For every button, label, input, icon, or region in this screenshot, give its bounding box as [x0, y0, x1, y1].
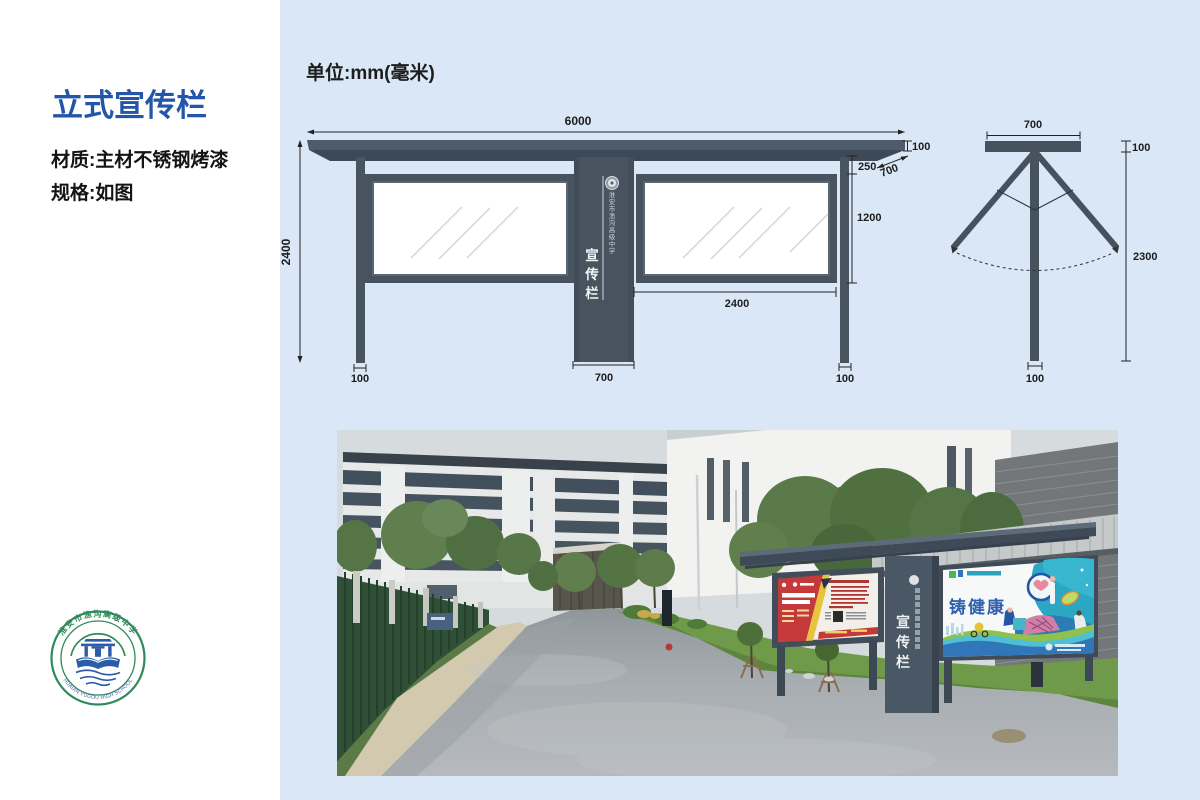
- svg-text:渔: 渔: [609, 211, 616, 220]
- svg-text:市: 市: [609, 204, 616, 213]
- svg-text:2400: 2400: [280, 238, 293, 265]
- svg-text:级: 级: [609, 232, 616, 241]
- svg-text:100: 100: [1026, 373, 1044, 385]
- svg-text:安: 安: [609, 197, 616, 206]
- svg-text:1200: 1200: [857, 212, 881, 224]
- svg-text:100: 100: [351, 373, 369, 385]
- svg-text:700: 700: [595, 372, 613, 384]
- svg-text:铸健康: 铸健康: [949, 597, 1006, 617]
- svg-text:学: 学: [609, 246, 616, 255]
- svg-text:100: 100: [1132, 142, 1150, 154]
- svg-text:沟: 沟: [609, 218, 616, 227]
- svg-text:传: 传: [895, 634, 910, 650]
- svg-text:高: 高: [609, 225, 616, 234]
- svg-text:宣: 宣: [896, 614, 910, 630]
- svg-text:700: 700: [1024, 119, 1042, 131]
- svg-text:2300: 2300: [1133, 251, 1157, 263]
- svg-text:100: 100: [836, 373, 854, 385]
- svg-text:250: 250: [858, 161, 876, 173]
- svg-text:传: 传: [584, 266, 599, 282]
- svg-text:2400: 2400: [725, 298, 749, 310]
- svg-text:100: 100: [912, 141, 930, 153]
- svg-text:中: 中: [609, 239, 616, 248]
- svg-text:栏: 栏: [585, 285, 599, 301]
- svg-text:宣: 宣: [585, 247, 599, 263]
- svg-text:6000: 6000: [565, 114, 592, 128]
- svg-text:栏: 栏: [896, 654, 910, 670]
- svg-text:淮: 淮: [609, 190, 616, 199]
